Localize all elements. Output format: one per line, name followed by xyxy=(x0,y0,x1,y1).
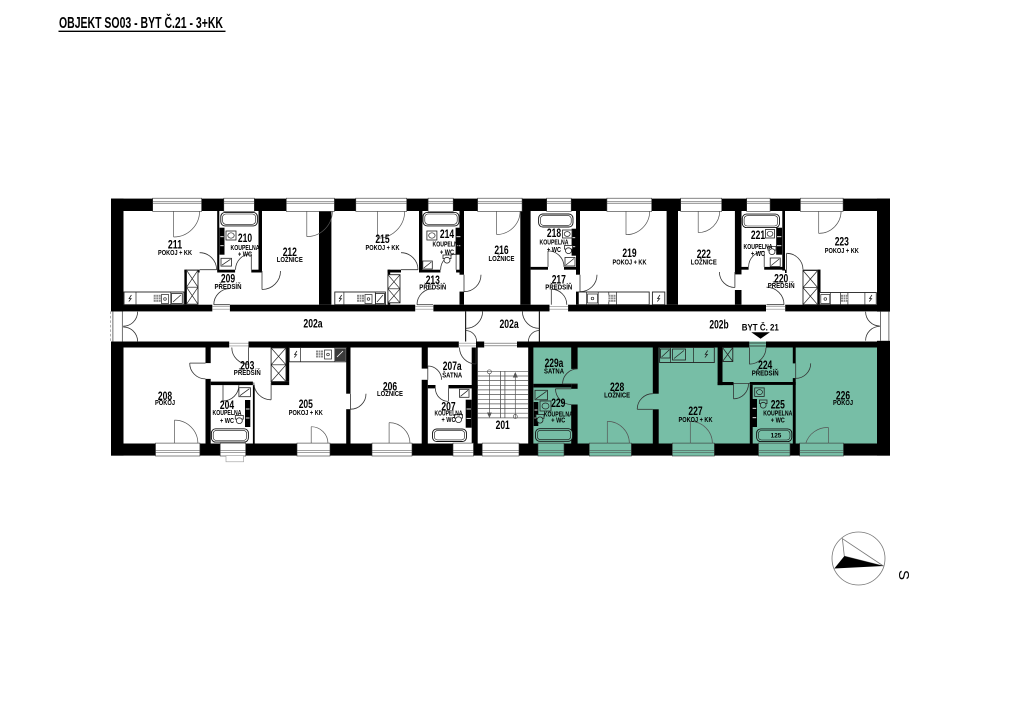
svg-text:PŘEDSÍŇ: PŘEDSÍŇ xyxy=(215,282,242,291)
svg-text:POKOJ + KK: POKOJ + KK xyxy=(679,417,713,424)
svg-text:KOUPELNA: KOUPELNA xyxy=(763,410,792,417)
svg-text:POKOJ + KK: POKOJ + KK xyxy=(613,259,647,266)
svg-text:KOUPELNA: KOUPELNA xyxy=(213,410,242,417)
svg-text:PŘEDSÍŇ: PŘEDSÍŇ xyxy=(419,283,446,292)
svg-text:202a: 202a xyxy=(303,318,323,331)
svg-text:+ WC: + WC xyxy=(442,417,456,424)
svg-text:LOŽNICE: LOŽNICE xyxy=(377,389,403,398)
svg-text:BYT Č. 21: BYT Č. 21 xyxy=(742,322,780,334)
svg-text:+ WC: + WC xyxy=(551,418,565,425)
svg-text:221: 221 xyxy=(751,229,766,242)
svg-text:POKOJ + KK: POKOJ + KK xyxy=(289,410,323,417)
svg-text:ŠATNA: ŠATNA xyxy=(442,370,462,379)
svg-text:KOUPELNA: KOUPELNA xyxy=(540,239,569,246)
svg-text:LOŽNICE: LOŽNICE xyxy=(691,257,717,266)
svg-text:202a: 202a xyxy=(500,318,520,331)
svg-text:PŘEDSÍŇ: PŘEDSÍŇ xyxy=(545,282,572,291)
svg-text:+ WC: + WC xyxy=(771,417,785,424)
svg-text:OBJEKT SO03 - BYT Č.21 - 3+KK: OBJEKT SO03 - BYT Č.21 - 3+KK xyxy=(59,14,224,32)
svg-text:POKOJ + KK: POKOJ + KK xyxy=(158,250,192,257)
svg-text:S: S xyxy=(895,570,912,580)
svg-text:+ WC: + WC xyxy=(440,249,454,256)
svg-text:218: 218 xyxy=(547,227,562,240)
svg-text:ŠATNA: ŠATNA xyxy=(544,367,564,376)
svg-text:223: 223 xyxy=(835,236,850,249)
svg-text:207a: 207a xyxy=(443,360,462,373)
svg-text:227: 227 xyxy=(688,405,702,418)
svg-text:201: 201 xyxy=(496,419,511,432)
svg-text:KOUPELNA: KOUPELNA xyxy=(744,244,773,251)
svg-text:PŘEDSÍŇ: PŘEDSÍŇ xyxy=(234,368,261,377)
svg-text:POKOJ + KK: POKOJ + KK xyxy=(366,245,400,252)
svg-text:LOŽNICE: LOŽNICE xyxy=(277,255,303,264)
svg-text:PŘEDSÍŇ: PŘEDSÍŇ xyxy=(768,281,795,290)
svg-text:+ WC: + WC xyxy=(220,418,234,425)
svg-text:210: 210 xyxy=(238,232,253,245)
svg-text:214: 214 xyxy=(440,228,455,241)
svg-text:202b: 202b xyxy=(709,318,728,331)
svg-text:LOŽNICE: LOŽNICE xyxy=(604,390,630,399)
svg-text:KOUPELNA: KOUPELNA xyxy=(433,241,462,248)
svg-text:POKOJ: POKOJ xyxy=(155,400,175,407)
svg-text:125: 125 xyxy=(771,432,782,439)
svg-text:LOŽNICE: LOŽNICE xyxy=(489,254,515,263)
svg-text:POKOJ + KK: POKOJ + KK xyxy=(825,248,859,255)
svg-text:+ WC: + WC xyxy=(547,247,561,254)
svg-text:+ WC: + WC xyxy=(238,251,252,258)
svg-text:+ WC: + WC xyxy=(751,251,765,258)
svg-text:219: 219 xyxy=(622,247,637,260)
svg-text:229: 229 xyxy=(551,397,566,410)
svg-text:PŘEDSÍŇ: PŘEDSÍŇ xyxy=(752,368,779,377)
svg-text:POKOJ: POKOJ xyxy=(833,400,853,407)
